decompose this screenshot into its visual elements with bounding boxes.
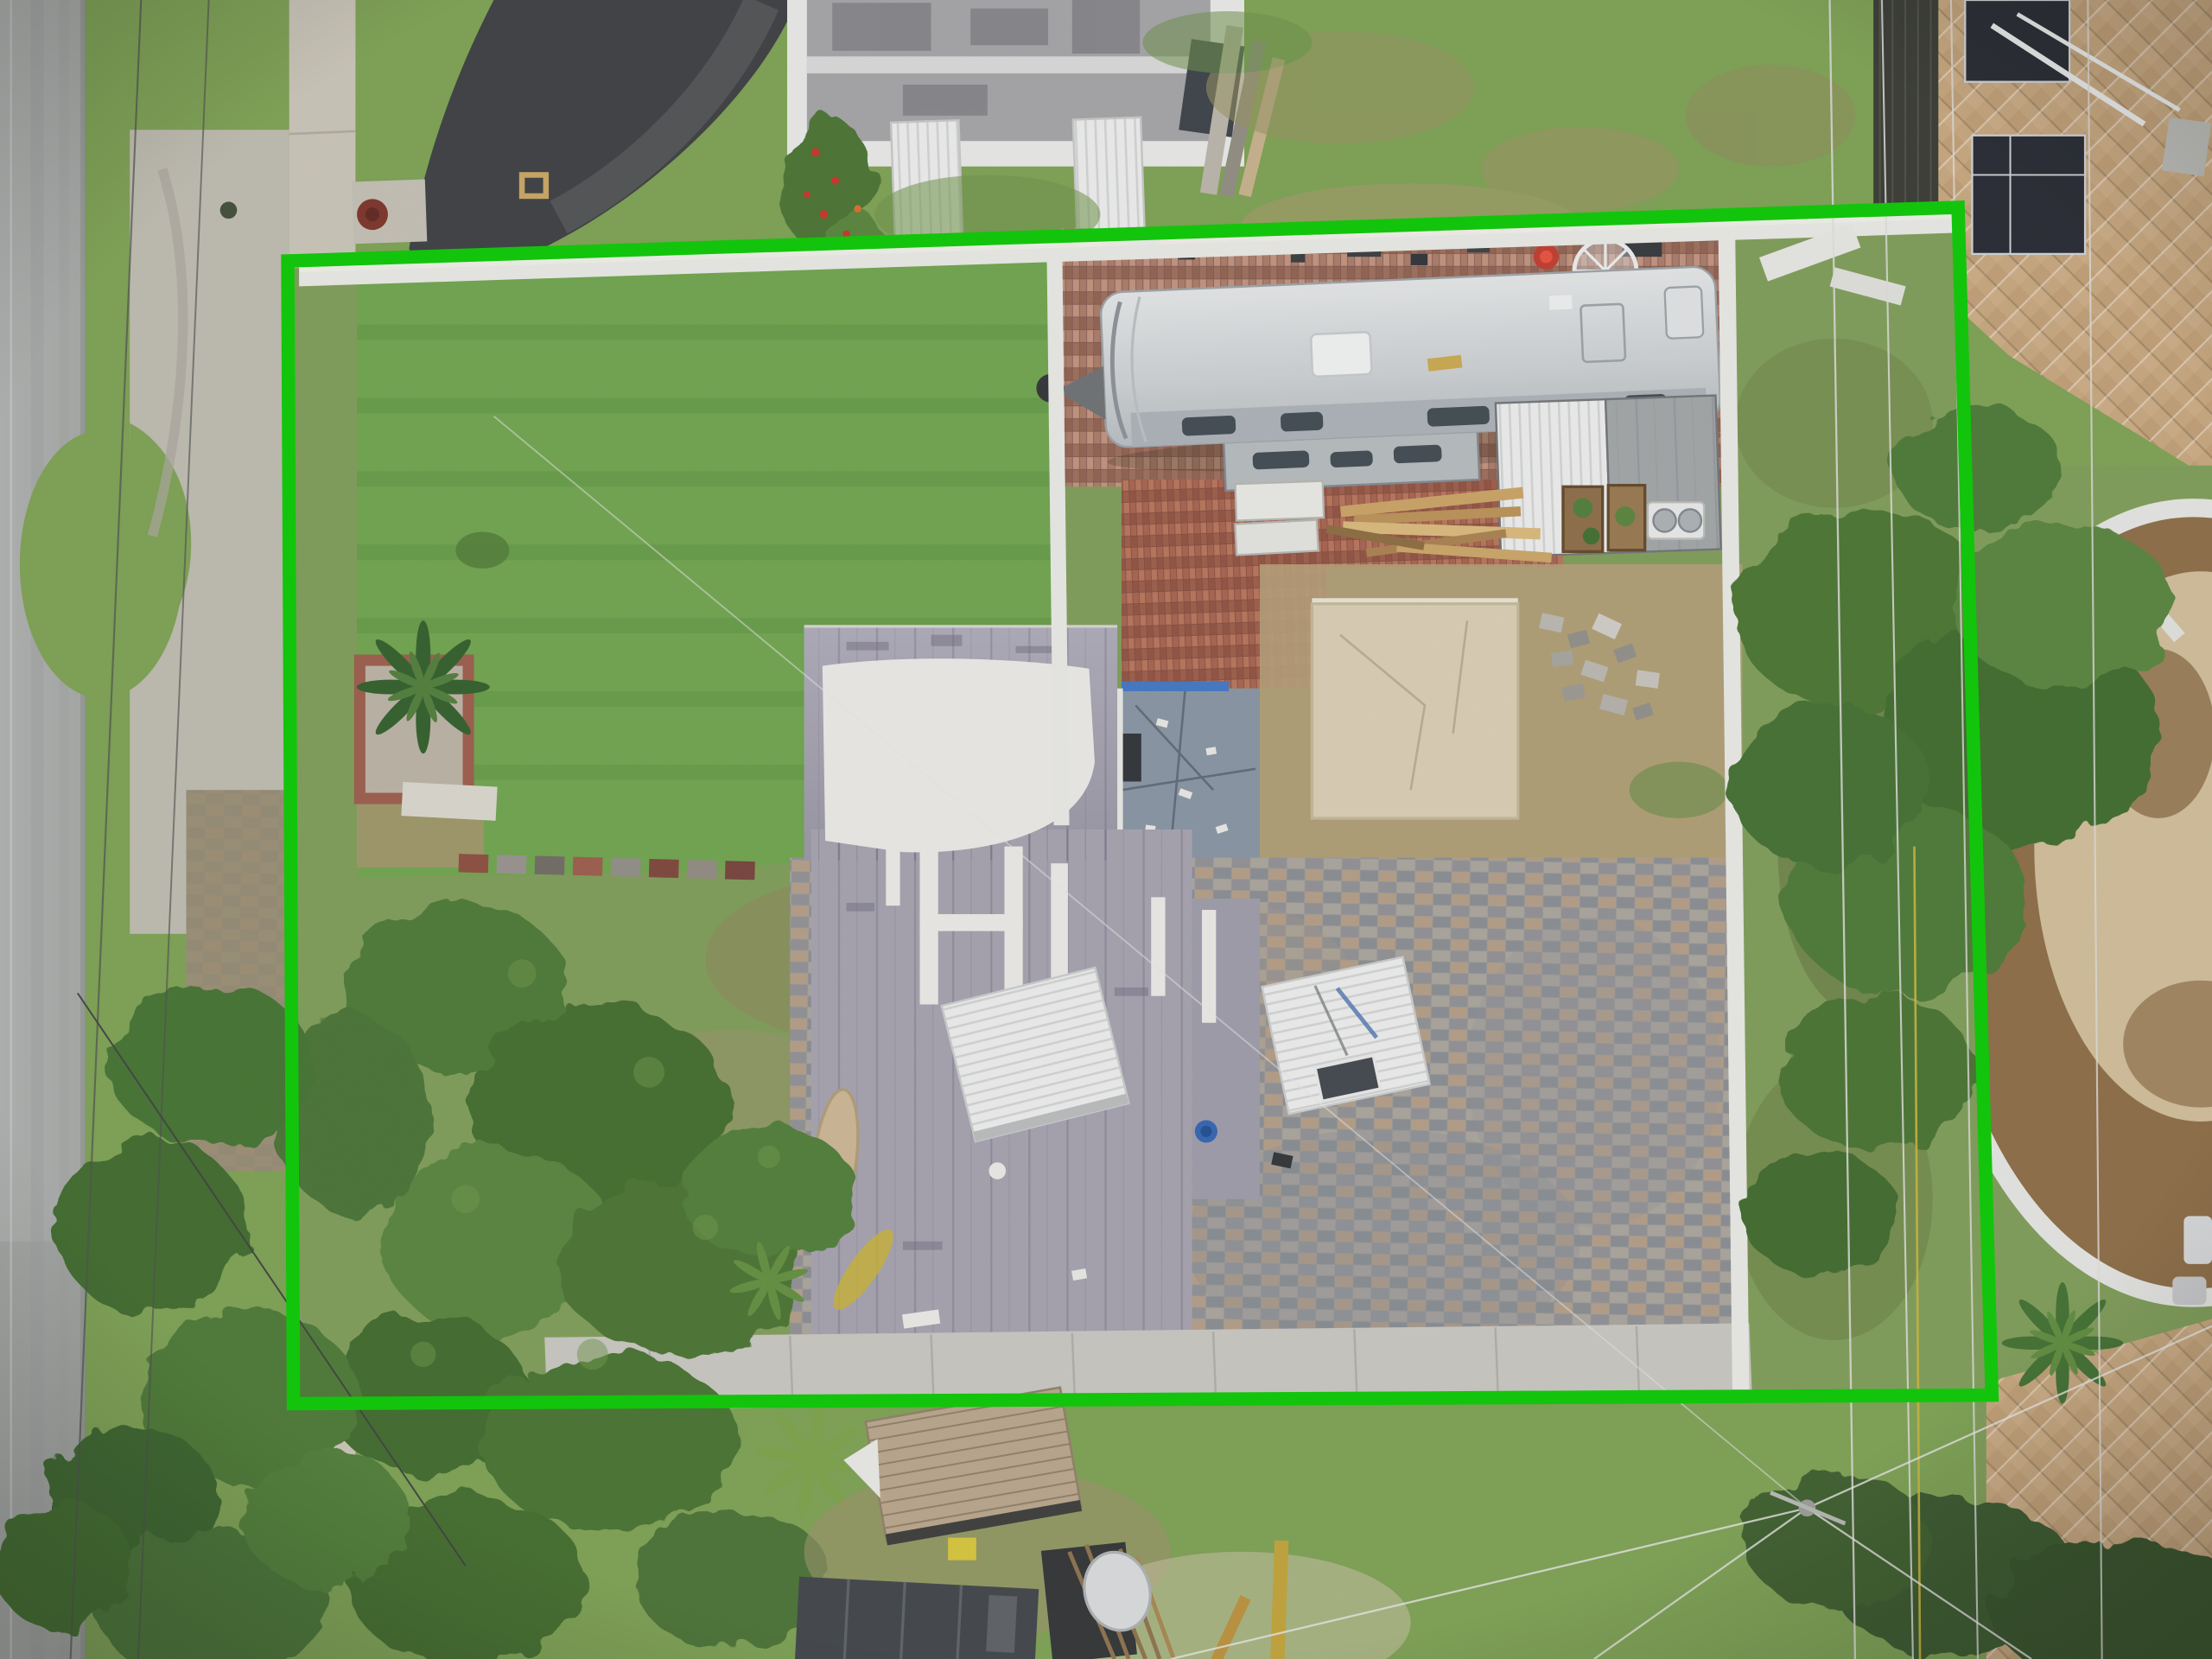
- aerial-photo: [0, 0, 2212, 1659]
- aerial-photo-canvas: [0, 0, 2212, 1659]
